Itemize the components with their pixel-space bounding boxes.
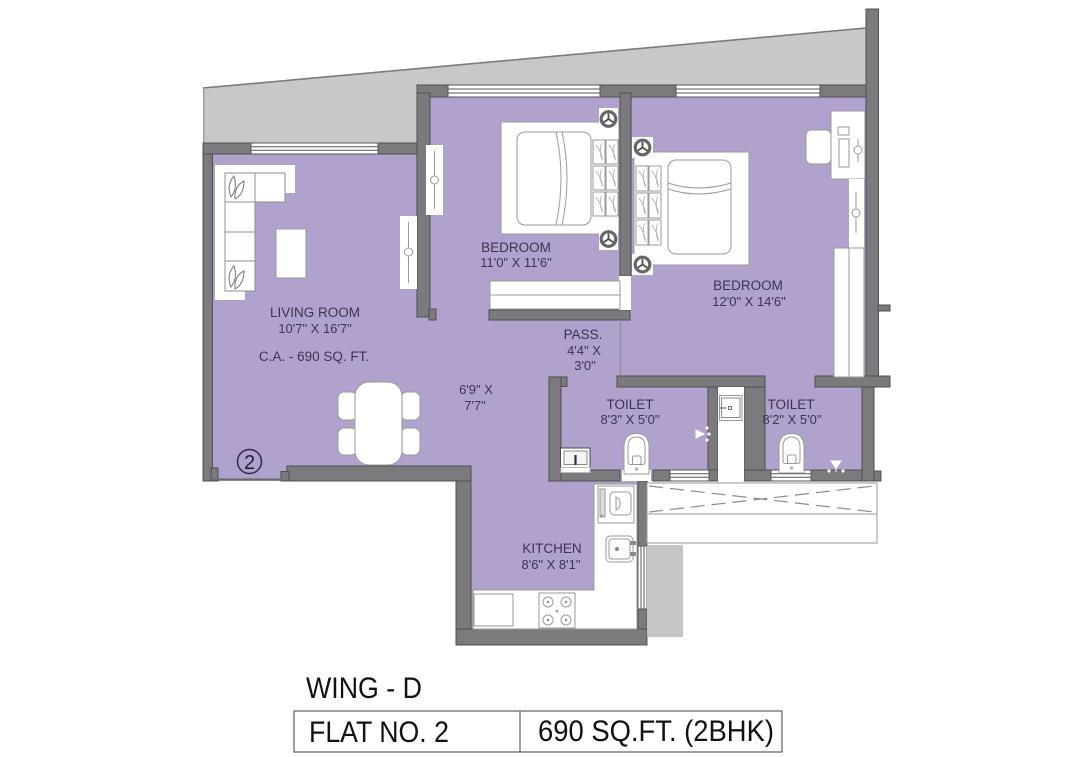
svg-text:BEDROOM: BEDROOM — [713, 278, 783, 293]
svg-text:7'7": 7'7" — [464, 398, 486, 413]
svg-text:4'4" X: 4'4" X — [567, 343, 601, 358]
svg-text:BEDROOM: BEDROOM — [481, 240, 551, 255]
svg-text:FLAT NO. 2: FLAT NO. 2 — [309, 716, 449, 749]
svg-text:690 SQ.FT. (2BHK): 690 SQ.FT. (2BHK) — [538, 715, 774, 748]
svg-text:8'6" X 8'1": 8'6" X 8'1" — [521, 557, 580, 572]
svg-text:8'2" X 5'0": 8'2" X 5'0" — [762, 412, 821, 427]
svg-text:11'0" X 11'6": 11'0" X 11'6" — [480, 255, 552, 270]
svg-text:3'0": 3'0" — [574, 358, 596, 373]
svg-text:12'0" X 14'6": 12'0" X 14'6" — [712, 294, 786, 309]
svg-text:C.A. - 690 SQ. FT.: C.A. - 690 SQ. FT. — [259, 349, 369, 364]
svg-text:10'7" X 16'7": 10'7" X 16'7" — [278, 321, 352, 336]
svg-text:2: 2 — [244, 452, 255, 474]
svg-text:TOILET: TOILET — [767, 397, 814, 412]
svg-text:TOILET: TOILET — [606, 397, 653, 412]
svg-text:PASS.: PASS. — [564, 327, 603, 342]
svg-text:6'9" X: 6'9" X — [459, 382, 493, 397]
svg-text:LIVING ROOM: LIVING ROOM — [270, 305, 360, 320]
svg-text:KITCHEN: KITCHEN — [522, 541, 581, 556]
svg-text:8'3" X 5'0": 8'3" X 5'0" — [600, 412, 659, 427]
svg-text:WING - D: WING - D — [306, 672, 422, 705]
